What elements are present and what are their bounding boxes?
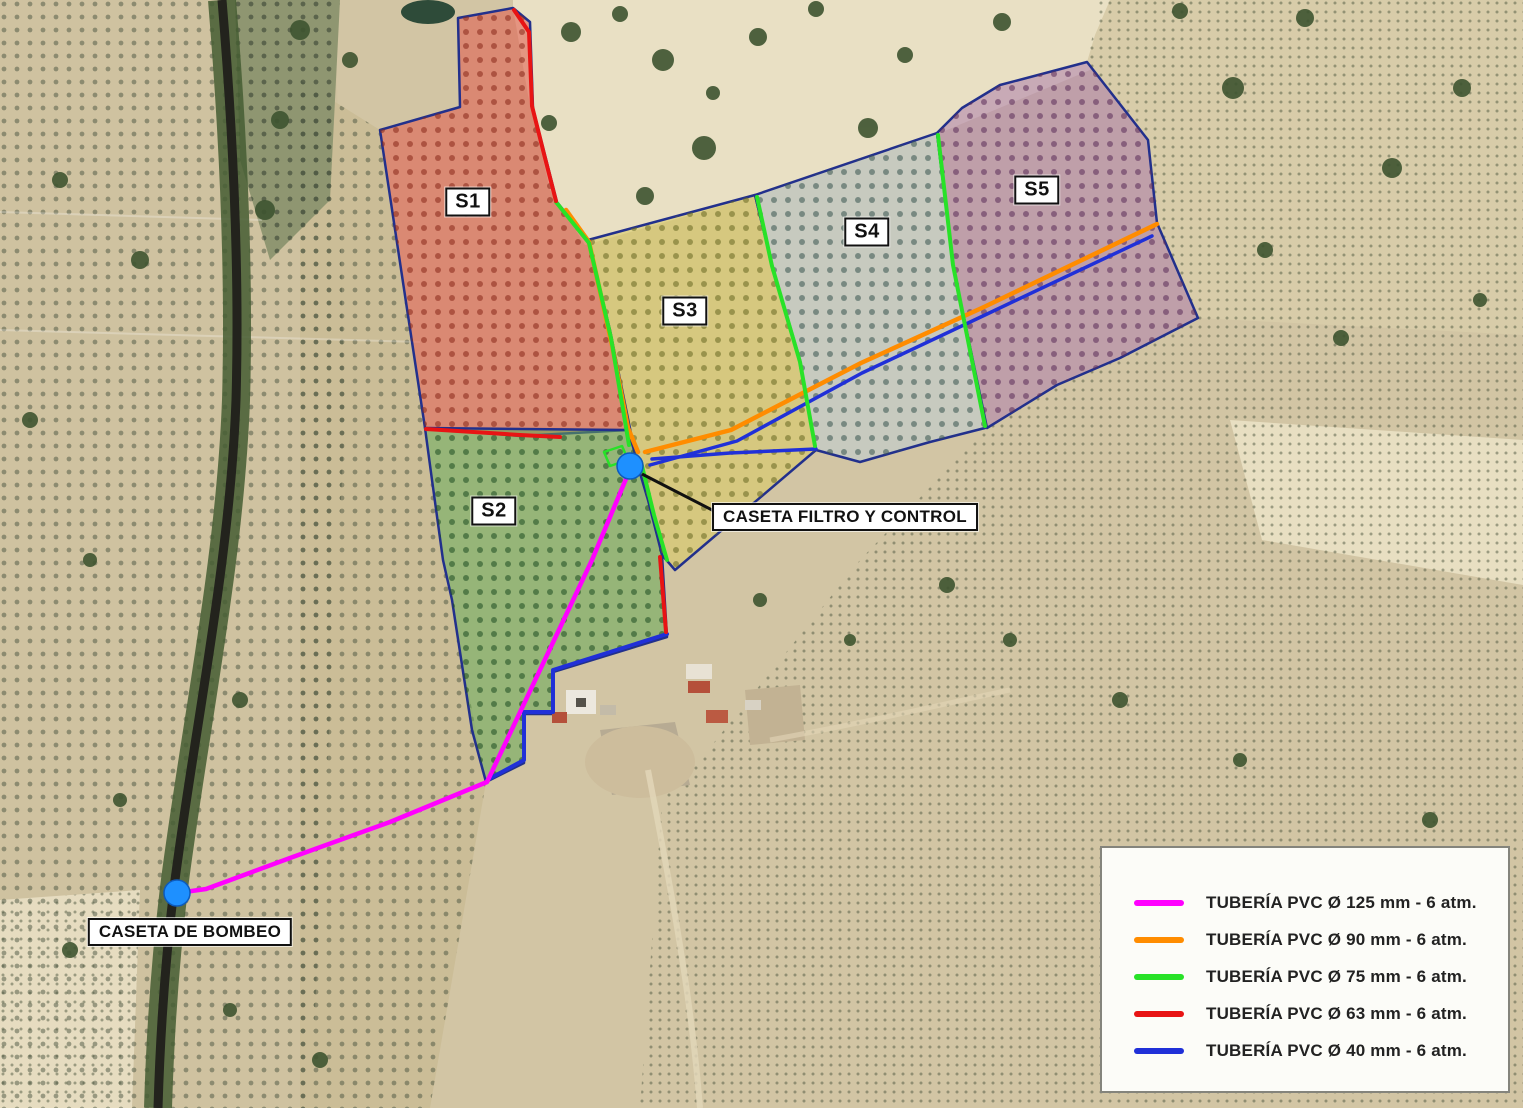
pipe-40mm-swatch bbox=[1134, 1048, 1184, 1054]
legend-label: TUBERÍA PVC Ø 125 mm - 6 atm. bbox=[1206, 893, 1477, 913]
sector-label-s2: S2 bbox=[471, 497, 516, 526]
legend-label: TUBERÍA PVC Ø 75 mm - 6 atm. bbox=[1206, 967, 1467, 987]
building bbox=[745, 700, 761, 710]
legend-label: TUBERÍA PVC Ø 40 mm - 6 atm. bbox=[1206, 1041, 1467, 1061]
legend-label: TUBERÍA PVC Ø 90 mm - 6 atm. bbox=[1206, 930, 1467, 950]
building bbox=[686, 664, 712, 679]
building bbox=[600, 705, 616, 715]
legend-label: TUBERÍA PVC Ø 63 mm - 6 atm. bbox=[1206, 1004, 1467, 1024]
legend-row: TUBERÍA PVC Ø 63 mm - 6 atm. bbox=[1102, 995, 1508, 1032]
legend-row: TUBERÍA PVC Ø 75 mm - 6 atm. bbox=[1102, 958, 1508, 995]
marker-filter-control-station bbox=[617, 453, 643, 479]
pipe-75mm-swatch bbox=[1134, 974, 1184, 980]
pipe-90mm-swatch bbox=[1134, 937, 1184, 943]
pipe-125mm-swatch bbox=[1134, 900, 1184, 906]
pumping-station-label: CASETA DE BOMBEO bbox=[88, 918, 292, 946]
sector-label-s5: S5 bbox=[1014, 176, 1059, 205]
building bbox=[688, 681, 710, 693]
marker-pumping-station bbox=[164, 880, 190, 906]
legend: TUBERÍA PVC Ø 125 mm - 6 atm. TUBERÍA PV… bbox=[1100, 846, 1510, 1093]
sector-label-s3: S3 bbox=[662, 297, 707, 326]
legend-row: TUBERÍA PVC Ø 90 mm - 6 atm. bbox=[1102, 921, 1508, 958]
sector-label-s1: S1 bbox=[445, 188, 490, 217]
sector-label-s4: S4 bbox=[844, 218, 889, 247]
building bbox=[552, 712, 567, 723]
pipe-63mm-swatch bbox=[1134, 1011, 1184, 1017]
building bbox=[706, 710, 728, 723]
legend-row: TUBERÍA PVC Ø 40 mm - 6 atm. bbox=[1102, 1032, 1508, 1069]
filter-control-label: CASETA FILTRO Y CONTROL bbox=[712, 503, 978, 531]
irrigation-map: S1 S2 S3 S4 S5 CASETA FILTRO Y CONTROL C… bbox=[0, 0, 1523, 1108]
legend-row: TUBERÍA PVC Ø 125 mm - 6 atm. bbox=[1102, 884, 1508, 921]
pond bbox=[401, 0, 455, 24]
